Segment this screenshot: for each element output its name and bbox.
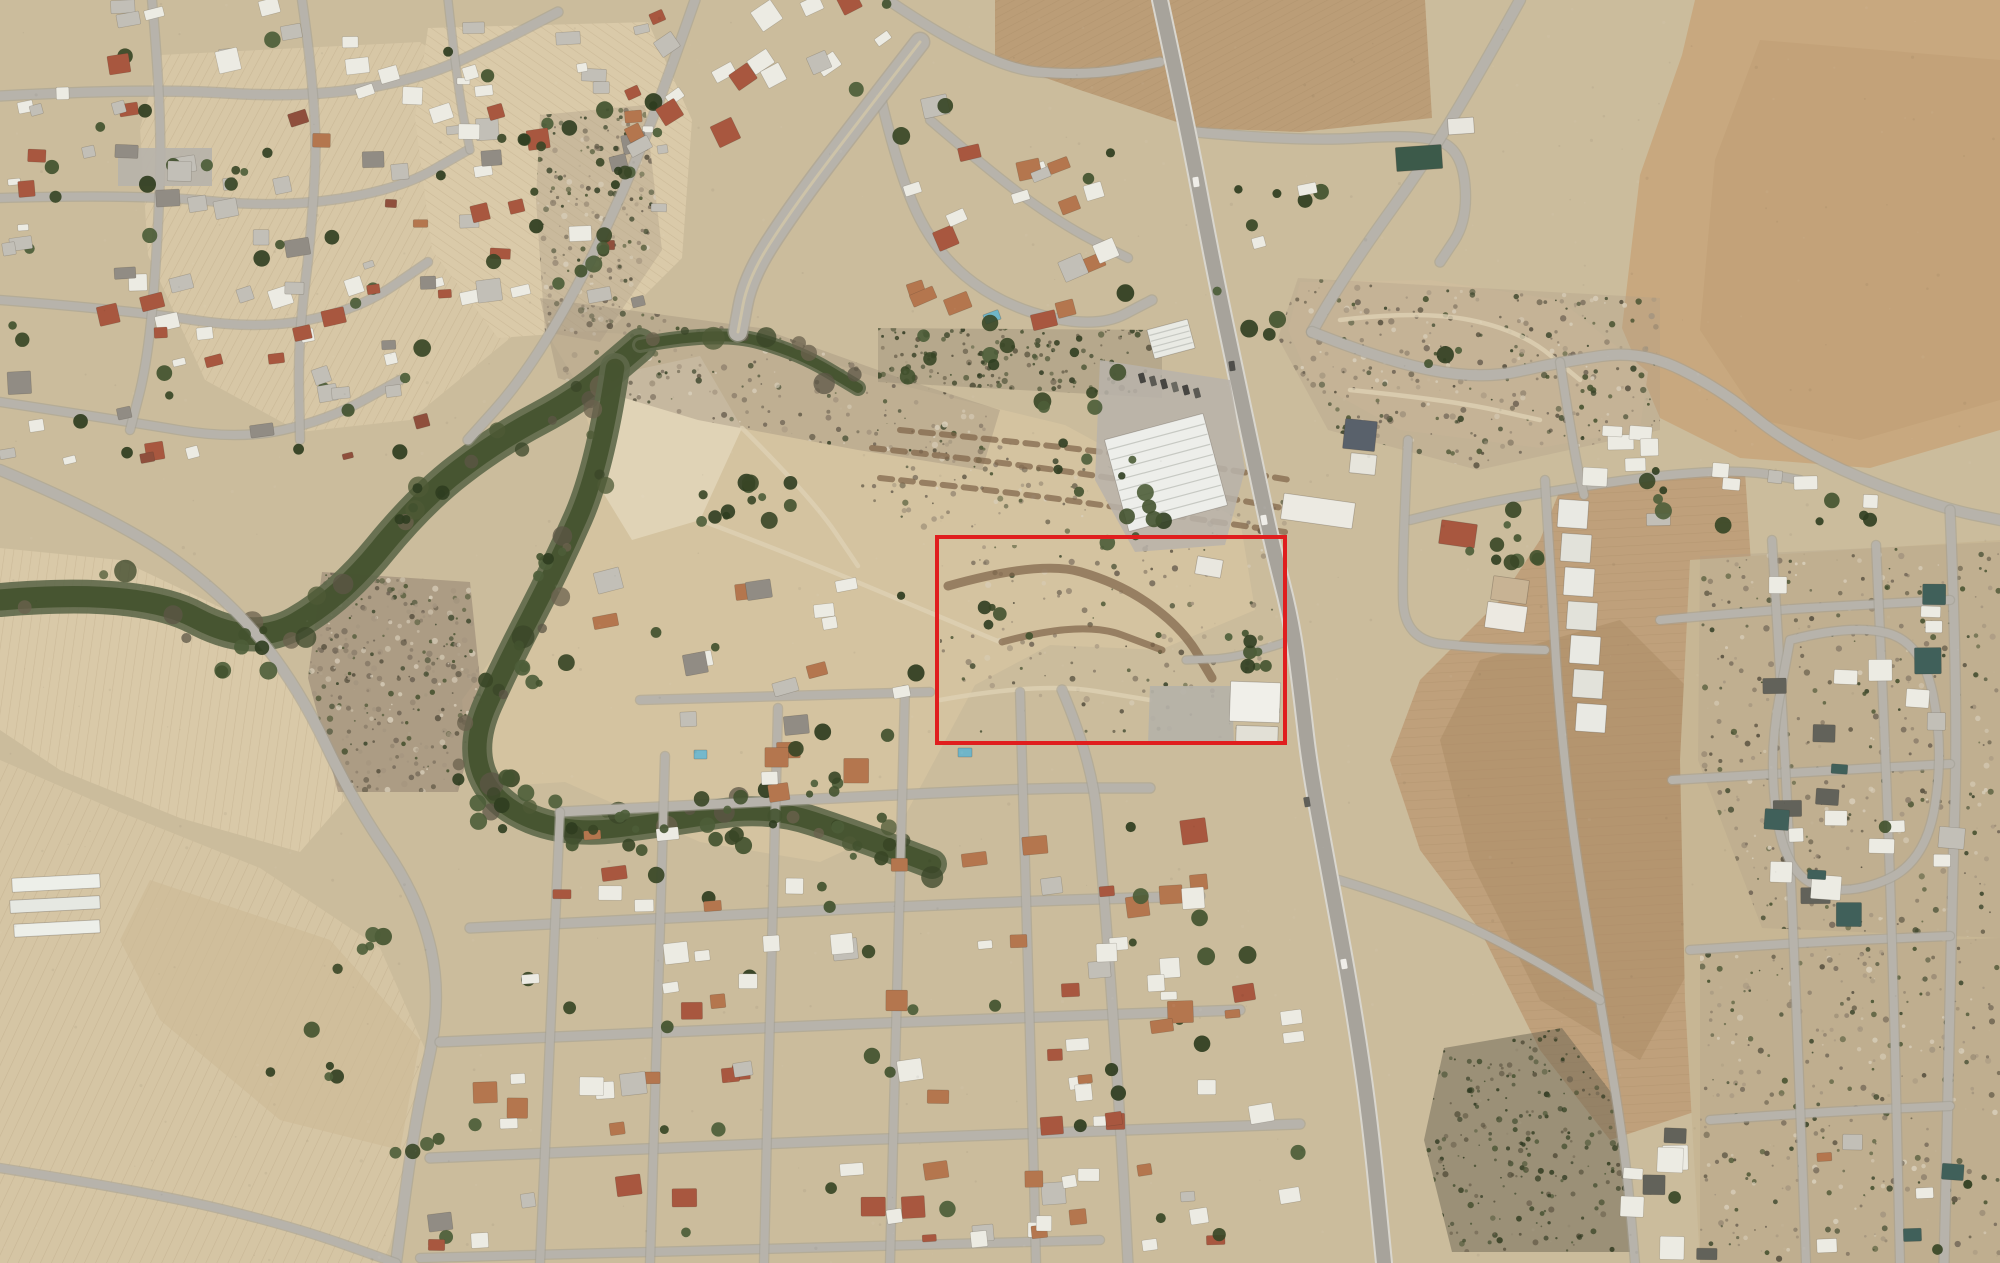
plot-store-1: [1229, 681, 1280, 723]
white-house-east: [1484, 601, 1527, 632]
apartment-strip-1: [1557, 499, 1589, 529]
field-topright-inner: [1700, 40, 2000, 440]
swimming-pool-plot: [958, 748, 972, 757]
store-lot: [1148, 686, 1234, 745]
white-building-east: [1349, 453, 1377, 476]
white-building-top: [1447, 117, 1474, 135]
apartment-strip-6: [1572, 669, 1604, 699]
red-roof-house-east: [1439, 520, 1478, 549]
aerial-imagery: [0, 0, 2000, 1263]
apartment-strip-5: [1569, 635, 1601, 665]
apartment-strip-3: [1563, 567, 1595, 597]
satellite-map-view[interactable]: [0, 0, 2000, 1263]
plot-store-2: [1236, 725, 1279, 742]
apartment-strip-4: [1566, 601, 1598, 631]
green-roof-building: [1395, 144, 1443, 171]
apartment-strip-2: [1560, 533, 1592, 563]
dark-roof-building: [1343, 418, 1378, 451]
tan-roof-house-east: [1491, 576, 1530, 605]
apartment-strip-7: [1575, 703, 1607, 733]
